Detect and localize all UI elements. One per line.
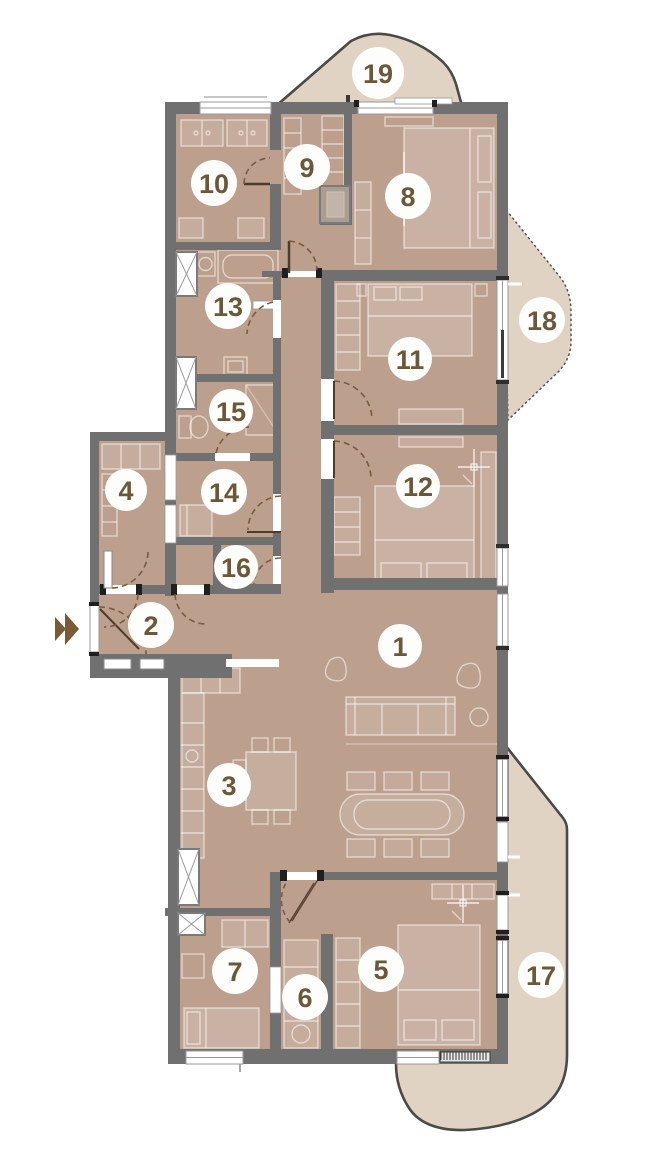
svg-text:13: 13 — [213, 292, 243, 322]
svg-text:12: 12 — [403, 472, 433, 502]
svg-text:2: 2 — [143, 611, 158, 641]
svg-text:4: 4 — [118, 476, 133, 506]
svg-text:9: 9 — [299, 153, 314, 183]
svg-text:19: 19 — [363, 59, 393, 89]
svg-text:6: 6 — [297, 983, 312, 1013]
svg-text:7: 7 — [227, 957, 242, 987]
svg-text:18: 18 — [527, 306, 557, 336]
svg-text:3: 3 — [221, 771, 236, 801]
svg-text:8: 8 — [400, 182, 415, 212]
svg-text:14: 14 — [209, 478, 239, 508]
svg-text:17: 17 — [526, 961, 556, 991]
svg-text:16: 16 — [221, 553, 251, 583]
svg-text:1: 1 — [392, 632, 407, 662]
svg-text:5: 5 — [373, 955, 388, 985]
svg-text:11: 11 — [396, 345, 425, 375]
svg-text:15: 15 — [216, 397, 246, 427]
svg-text:10: 10 — [199, 169, 229, 199]
